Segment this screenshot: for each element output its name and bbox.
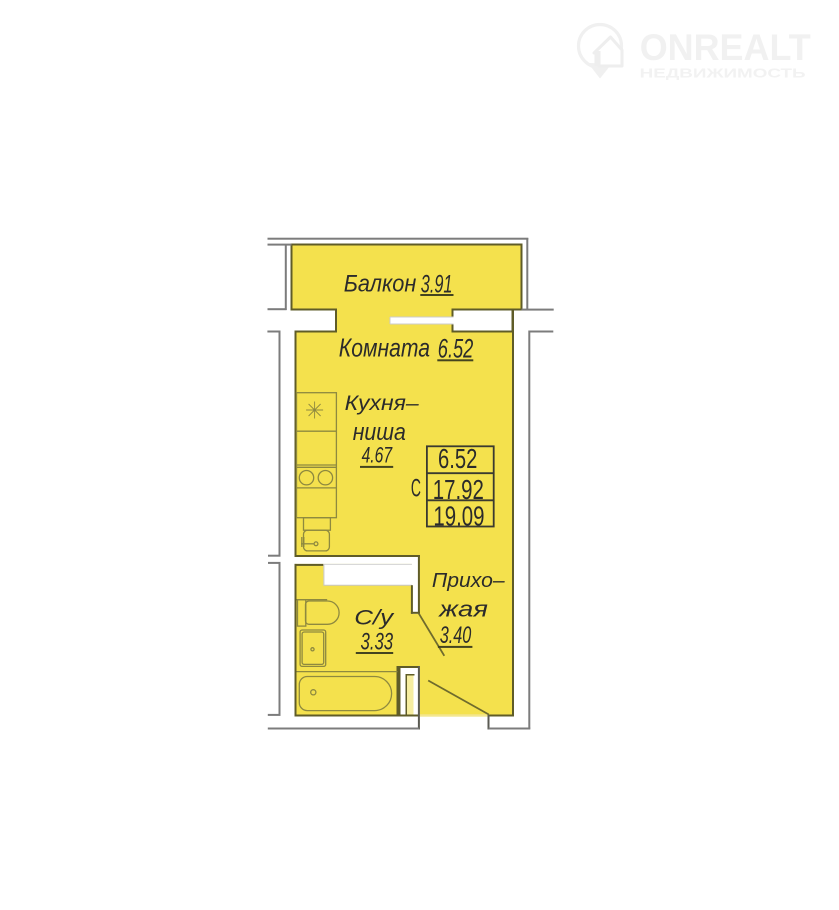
svg-text:4.67: 4.67: [362, 443, 393, 468]
svg-text:Балкон: Балкон: [344, 270, 417, 297]
svg-text:6.52: 6.52: [438, 443, 477, 474]
svg-text:Комната: Комната: [339, 332, 430, 362]
svg-text:С/у: С/у: [354, 607, 395, 630]
svg-text:ONREALT: ONREALT: [640, 27, 811, 68]
svg-text:19.09: 19.09: [433, 501, 484, 532]
svg-text:3.33: 3.33: [361, 629, 394, 656]
svg-text:С: С: [411, 474, 421, 502]
svg-text:Прихо–: Прихо–: [432, 569, 505, 592]
svg-text:НЕДВИЖИМОСТЬ: НЕДВИЖИМОСТЬ: [640, 66, 806, 81]
svg-text:жая: жая: [438, 596, 488, 621]
svg-text:3.40: 3.40: [440, 622, 472, 649]
svg-text:6.52: 6.52: [438, 334, 474, 364]
svg-text:Кухня–: Кухня–: [345, 392, 419, 415]
